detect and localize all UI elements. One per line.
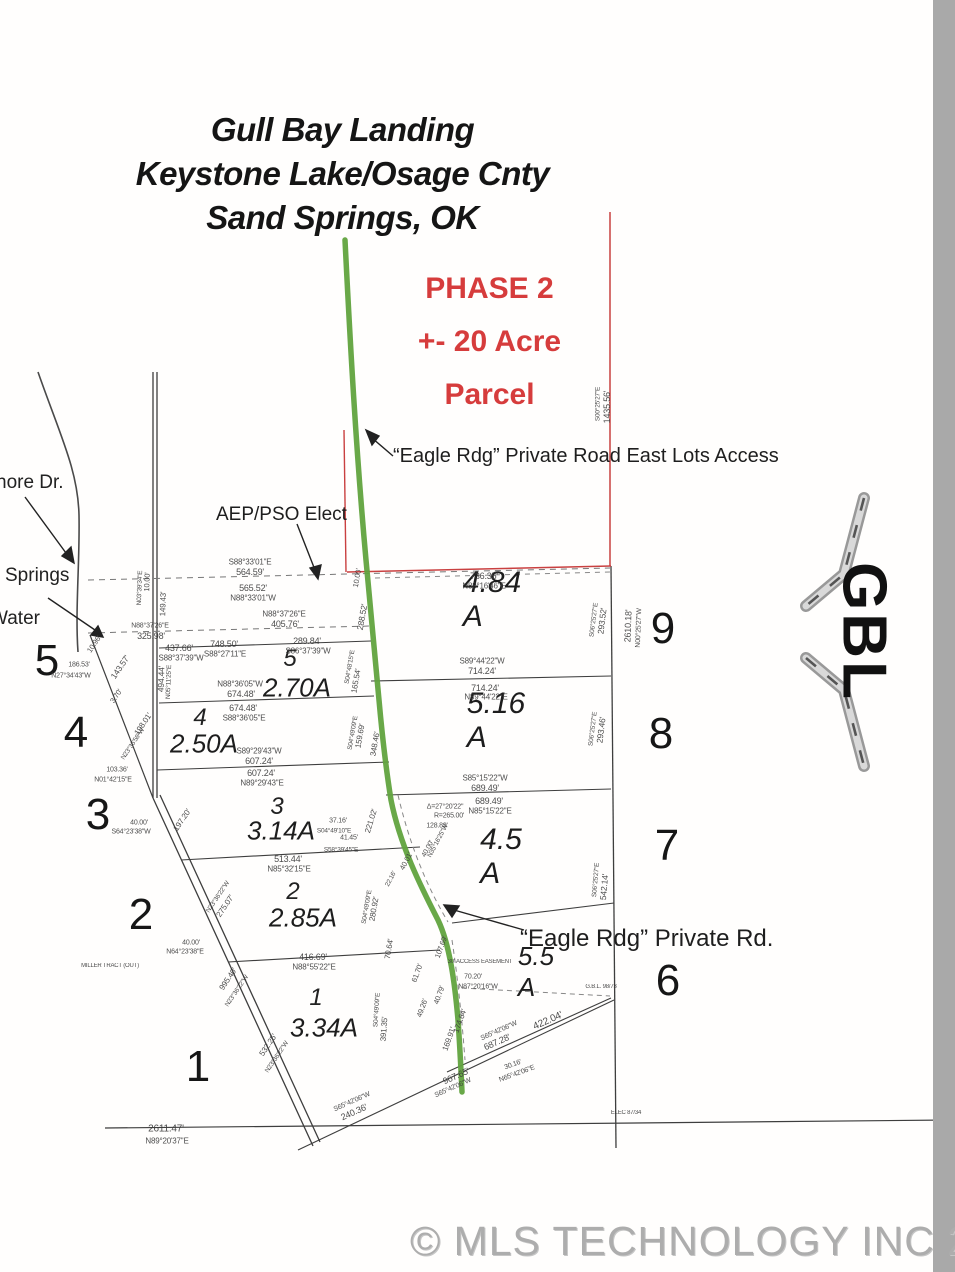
acreage-label: 5.5 A — [518, 941, 554, 1003]
lot9-8-line — [371, 676, 611, 681]
west-boundary — [153, 372, 157, 798]
lot-number: 8 — [649, 709, 673, 759]
dim-label: N87°20'16"W — [458, 984, 497, 991]
dim-label: S00°25'27"E — [595, 387, 602, 421]
dim-label: N03°39'34"E — [136, 571, 144, 606]
dim-label: 565.52' — [239, 583, 267, 593]
dim-label: N89°20'37"E — [145, 1137, 188, 1146]
dim-label: S88°37'39"W — [159, 654, 204, 663]
dim-label: S88°33'01"E — [229, 558, 272, 567]
dim-label: 736.35' — [470, 571, 498, 581]
acreage-label: 4.5 A — [480, 823, 522, 891]
phase2-note: PHASE 2 +- 20 Acre Parcel — [362, 262, 617, 421]
utility-label: AEP/PSO Elect — [216, 504, 347, 526]
dim-label: 714.24' — [471, 683, 499, 693]
dim-label: 325.98' — [137, 631, 165, 641]
dim-label: S89°29'43"W — [237, 747, 282, 756]
lot-number: 6 — [656, 956, 680, 1006]
dim-label: 40.00' — [182, 940, 200, 947]
utility-dashed-1 — [88, 568, 610, 580]
lot6-south-line — [447, 998, 611, 1072]
gbl-logo-text: GBL — [830, 562, 899, 702]
east-access-label: “Eagle Rdg” Private Road East Lots Acces… — [393, 445, 779, 468]
street-label-drive: nore Dr. — [0, 472, 64, 494]
dim-label: S88°36'05"E — [223, 714, 266, 723]
dim-label: S04°49'10"E — [317, 828, 351, 835]
plat-map-canvas: GBL Gull Bay Landing Keystone Lake/Osage… — [0, 0, 955, 1272]
phase2-line-3: Parcel — [362, 368, 617, 421]
dim-label: S64°23'38"W — [111, 829, 150, 836]
dim-label: G.B.L. 98/73 — [585, 984, 616, 990]
dim-label: N88°33'01"W — [230, 594, 275, 603]
dim-label: 37.16' — [329, 818, 347, 825]
dim-label: N88°37'26"E — [262, 610, 305, 619]
dim-label: R=265.00' — [434, 813, 464, 820]
dim-label: S89°44'22"W — [460, 657, 505, 666]
dim-label: 674.48' — [227, 689, 255, 699]
lot-number: 4 — [64, 708, 88, 758]
dim-label: 149.43' — [158, 592, 168, 617]
dim-label: 689.49' — [475, 796, 503, 806]
dim-label: 674.48' — [229, 703, 257, 713]
title-line-3: Sand Springs, OK — [110, 196, 575, 240]
dim-label: 689.49' — [471, 783, 499, 793]
dim-label: 2611.47' — [148, 1124, 184, 1135]
dim-label: 40.00' — [130, 820, 148, 827]
dim-label: 513.44' — [274, 854, 302, 864]
dim-label: N64°23'38"E — [166, 949, 204, 956]
dim-label: N01°42'15"E — [94, 777, 132, 784]
dim-label: 41.45' — [340, 835, 358, 842]
dim-label: 564.59' — [236, 567, 264, 577]
mls-watermark: © MLS TECHNOLOGY INC 2026 — [410, 1218, 955, 1265]
title-line-1: Gull Bay Landing — [110, 108, 575, 152]
dim-label: N00°25'27"W — [635, 608, 643, 648]
lot-number: 9 — [651, 604, 675, 654]
east-boundary — [611, 566, 616, 1148]
acreage-label: 2.70A — [263, 673, 331, 704]
lot-number: 3 — [86, 790, 110, 840]
dim-label: 2610.18' — [622, 610, 633, 643]
lot-number: 7 — [655, 821, 679, 871]
south-section-line — [105, 1120, 950, 1128]
acreage-label: 2.50A — [170, 729, 238, 760]
dim-label: N05°11'25"E — [165, 665, 173, 699]
dim-label: 416.69' — [299, 952, 327, 962]
dim-label: 30' ACCESS EASEMENT — [448, 959, 513, 965]
dim-label: 607.24' — [247, 768, 275, 778]
left-road-curve — [38, 372, 79, 652]
dim-label: 391.35' — [379, 1016, 390, 1041]
dim-label: 186.53' — [68, 662, 89, 669]
dim-label: N27°34'43"W — [51, 673, 90, 680]
dim-label: 748.50' — [210, 639, 238, 649]
lot7-6-line — [452, 903, 614, 923]
dim-label: 103.36' — [106, 767, 127, 774]
dim-label: N88°55'22"E — [292, 963, 335, 972]
dim-label: MILLER TRACT (OUT) — [81, 963, 139, 969]
gbl-logo: GBL — [772, 482, 917, 782]
acreage-label: 3.34A — [290, 1013, 358, 1044]
dim-label: 1435.56' — [602, 391, 612, 424]
right-gray-bar — [933, 0, 955, 1272]
dim-label: S88°27'11"E — [204, 650, 246, 659]
dim-label: N89°29'43"E — [240, 779, 283, 788]
map-title: Gull Bay Landing Keystone Lake/Osage Cnt… — [110, 108, 575, 240]
dim-label: N88°36'05"W — [217, 680, 262, 689]
acreage-label: 2.85A — [269, 903, 337, 934]
dim-label: ELEC 87/34 — [611, 1110, 641, 1116]
dim-label: 437.66' — [165, 643, 193, 653]
dim-label: S86°37'39"W — [286, 647, 331, 656]
title-line-2: Keystone Lake/Osage Cnty — [110, 152, 575, 196]
dim-label: 289.84' — [293, 636, 321, 646]
dim-label: 714.24' — [468, 666, 496, 676]
private-road-label: “Eagle Rdg” Private Rd. — [520, 925, 773, 953]
street-label-springs: Springs — [5, 565, 69, 587]
lot-number: 1 — [186, 1042, 210, 1092]
dim-label: 70.20' — [464, 974, 482, 981]
phase2-line-1: PHASE 2 — [362, 262, 617, 315]
dim-label: 607.24' — [245, 756, 273, 766]
lot2-1-line — [228, 950, 440, 962]
dim-label: Δ=27°20'22" — [427, 804, 464, 811]
phase2-line-2: +- 20 Acre — [362, 315, 617, 368]
dim-label: N85°15'22"E — [468, 807, 511, 816]
dim-label: N85°32'15"E — [267, 865, 310, 874]
lot-number: 2 — [129, 890, 153, 940]
dim-label: N88°37'26"E — [131, 623, 169, 630]
street-label-water: Water — [0, 608, 40, 630]
dim-label: N89°44'22"E — [464, 693, 507, 702]
lot-number-inner: 1 — [309, 984, 322, 1012]
dim-label: S85°15'22"W — [463, 774, 508, 783]
acreage-label: 3.14A — [247, 816, 315, 847]
dim-label: 405.76' — [271, 619, 299, 629]
dim-label: N88°16'46"E — [462, 582, 505, 591]
dim-label: S58°39'45"E — [324, 847, 358, 854]
phase2-red-west — [344, 430, 346, 572]
